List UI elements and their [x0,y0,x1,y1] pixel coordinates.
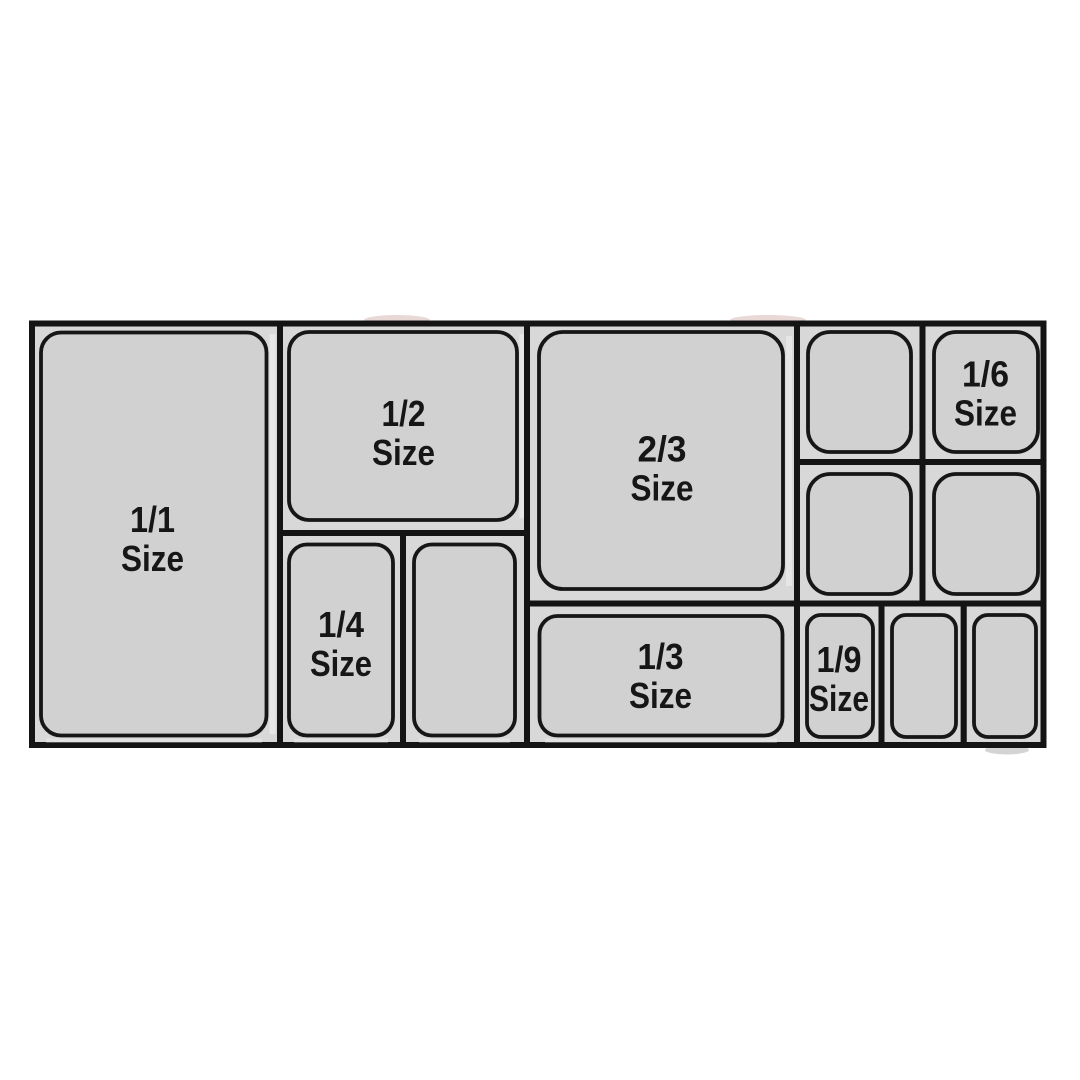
svg-text:1/6: 1/6 [962,354,1009,395]
svg-text:Size: Size [631,468,694,509]
svg-text:Size: Size [372,432,435,473]
svg-text:1/1: 1/1 [130,499,175,540]
svg-text:Size: Size [629,675,692,716]
svg-text:1/9: 1/9 [817,639,862,680]
svg-text:1/3: 1/3 [638,636,684,677]
svg-text:Size: Size [809,678,869,719]
svg-text:Size: Size [310,643,372,684]
svg-text:Size: Size [121,538,184,579]
svg-text:Size: Size [954,393,1017,434]
svg-text:1/4: 1/4 [318,604,365,645]
svg-text:2/3: 2/3 [638,429,687,470]
svg-text:1/2: 1/2 [382,393,426,434]
